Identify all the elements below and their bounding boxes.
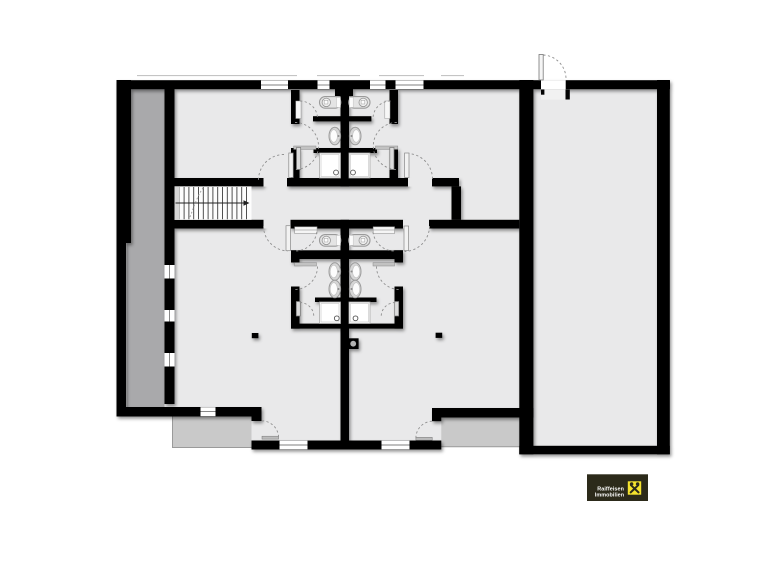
svg-text:Immobilien: Immobilien — [595, 492, 624, 498]
svg-text:Raiffeisen: Raiffeisen — [597, 486, 624, 492]
